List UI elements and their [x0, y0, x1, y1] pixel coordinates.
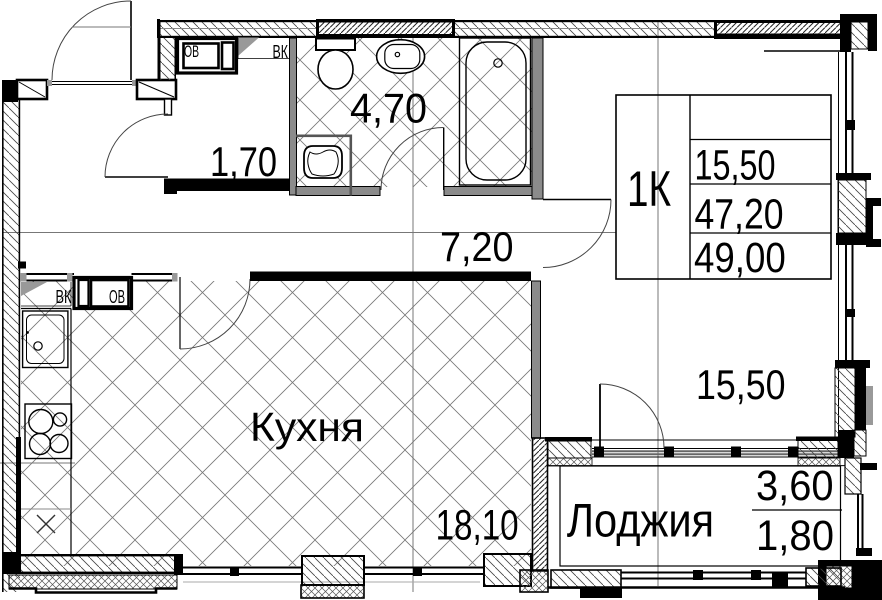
svg-text:1,70: 1,70 — [210, 138, 277, 185]
svg-text:47,20: 47,20 — [695, 191, 784, 239]
svg-text:1,80: 1,80 — [756, 512, 834, 560]
svg-text:3,60: 3,60 — [756, 462, 834, 510]
svg-text:ВК: ВК — [273, 42, 289, 62]
svg-text:ВК: ВК — [56, 287, 72, 307]
svg-text:7,20: 7,20 — [440, 223, 514, 270]
svg-text:4,70: 4,70 — [350, 85, 427, 132]
svg-text:Кухня: Кухня — [250, 404, 364, 450]
svg-text:15,50: 15,50 — [695, 142, 776, 190]
svg-text:15,50: 15,50 — [696, 361, 786, 408]
svg-text:ОВ: ОВ — [109, 287, 125, 307]
svg-text:49,00: 49,00 — [694, 234, 786, 282]
svg-text:1К: 1К — [627, 161, 671, 217]
svg-text:18,10: 18,10 — [436, 503, 519, 550]
svg-text:Лоджия: Лоджия — [567, 495, 714, 548]
svg-text:ОВ: ОВ — [184, 42, 199, 61]
